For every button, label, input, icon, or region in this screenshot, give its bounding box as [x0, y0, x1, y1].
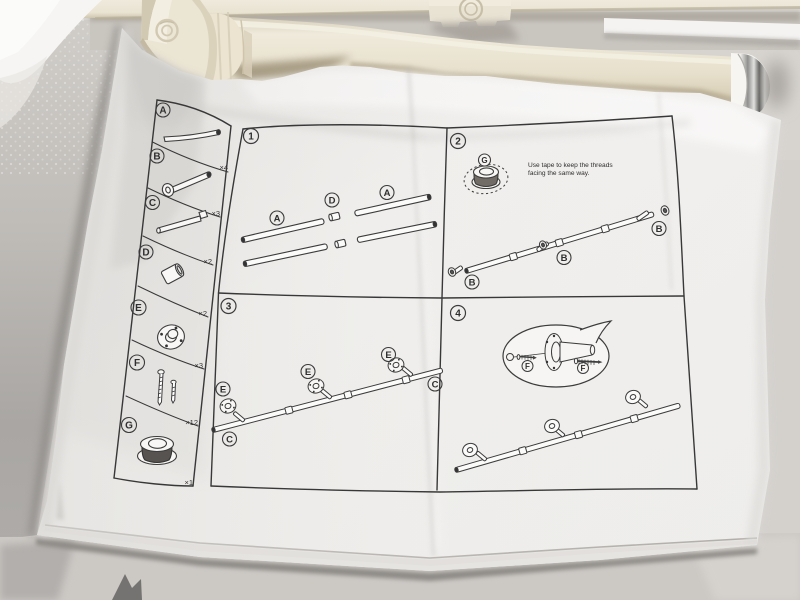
- svg-text:A: A: [274, 214, 281, 225]
- svg-text:1: 1: [248, 132, 254, 143]
- svg-text:G: G: [125, 421, 133, 432]
- svg-text:F: F: [134, 358, 140, 369]
- svg-text:B: B: [469, 278, 476, 289]
- svg-text:3: 3: [226, 302, 232, 313]
- svg-text:×2: ×2: [198, 309, 207, 318]
- svg-text:Use tape to keep the threads: Use tape to keep the threads: [528, 162, 613, 169]
- svg-text:D: D: [142, 248, 149, 259]
- svg-text:C: C: [432, 380, 439, 391]
- svg-text:E: E: [135, 303, 142, 314]
- svg-text:D: D: [329, 196, 336, 207]
- svg-text:A: A: [384, 188, 391, 199]
- svg-text:E: E: [385, 350, 391, 361]
- svg-text:×3: ×3: [194, 361, 203, 370]
- svg-text:A: A: [159, 106, 166, 117]
- svg-text:C: C: [226, 435, 233, 446]
- svg-text:facing the same way.: facing the same way.: [528, 170, 590, 177]
- svg-text:B: B: [561, 253, 568, 264]
- svg-text:×4: ×4: [219, 163, 228, 172]
- svg-text:G: G: [481, 156, 487, 165]
- svg-text:4: 4: [455, 309, 461, 320]
- svg-text:×2: ×2: [203, 257, 212, 266]
- svg-text:E: E: [220, 385, 226, 396]
- svg-text:×12: ×12: [185, 418, 198, 427]
- svg-text:2: 2: [455, 137, 461, 148]
- svg-text:C: C: [149, 198, 156, 209]
- svg-text:B: B: [656, 224, 663, 235]
- svg-text:E: E: [305, 367, 311, 378]
- svg-text:×3: ×3: [211, 209, 220, 218]
- svg-text:×1: ×1: [184, 478, 193, 487]
- svg-text:F: F: [525, 362, 530, 371]
- svg-text:F: F: [581, 364, 586, 373]
- svg-text:B: B: [153, 152, 160, 163]
